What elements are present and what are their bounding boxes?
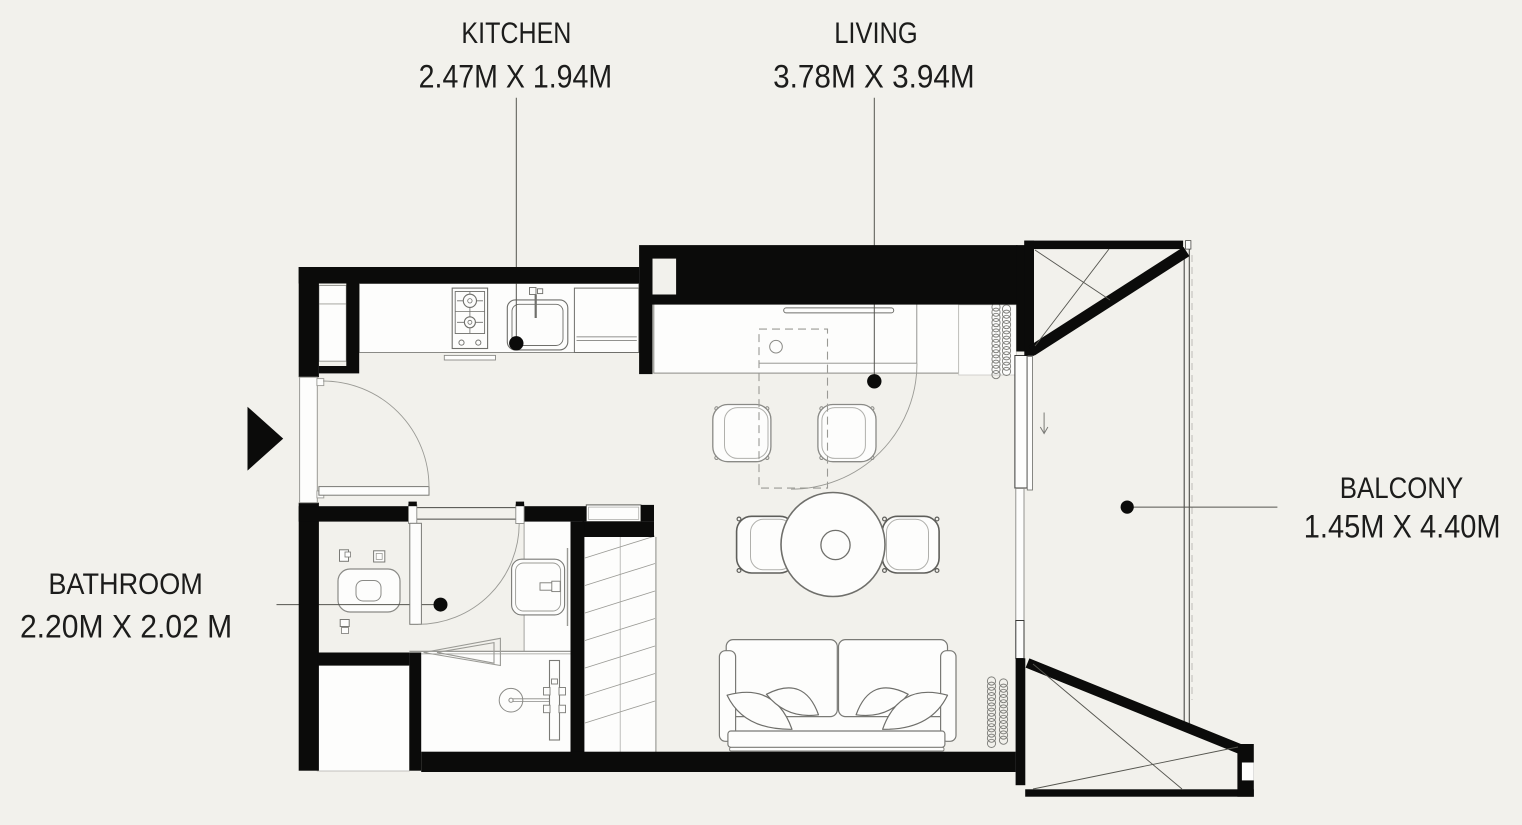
svg-text:3.78M X 3.94M: 3.78M X 3.94M	[773, 59, 975, 95]
svg-text:BALCONY: BALCONY	[1340, 472, 1464, 505]
svg-text:BATHROOM: BATHROOM	[48, 568, 203, 601]
svg-text:LIVING: LIVING	[834, 17, 918, 50]
svg-text:2.20M X 2.02 M: 2.20M X 2.02 M	[20, 608, 232, 644]
svg-text:2.47M X 1.94M: 2.47M X 1.94M	[419, 59, 613, 95]
svg-text:KITCHEN: KITCHEN	[461, 17, 571, 50]
svg-text:1.45M X 4.40M: 1.45M X 4.40M	[1304, 508, 1501, 544]
